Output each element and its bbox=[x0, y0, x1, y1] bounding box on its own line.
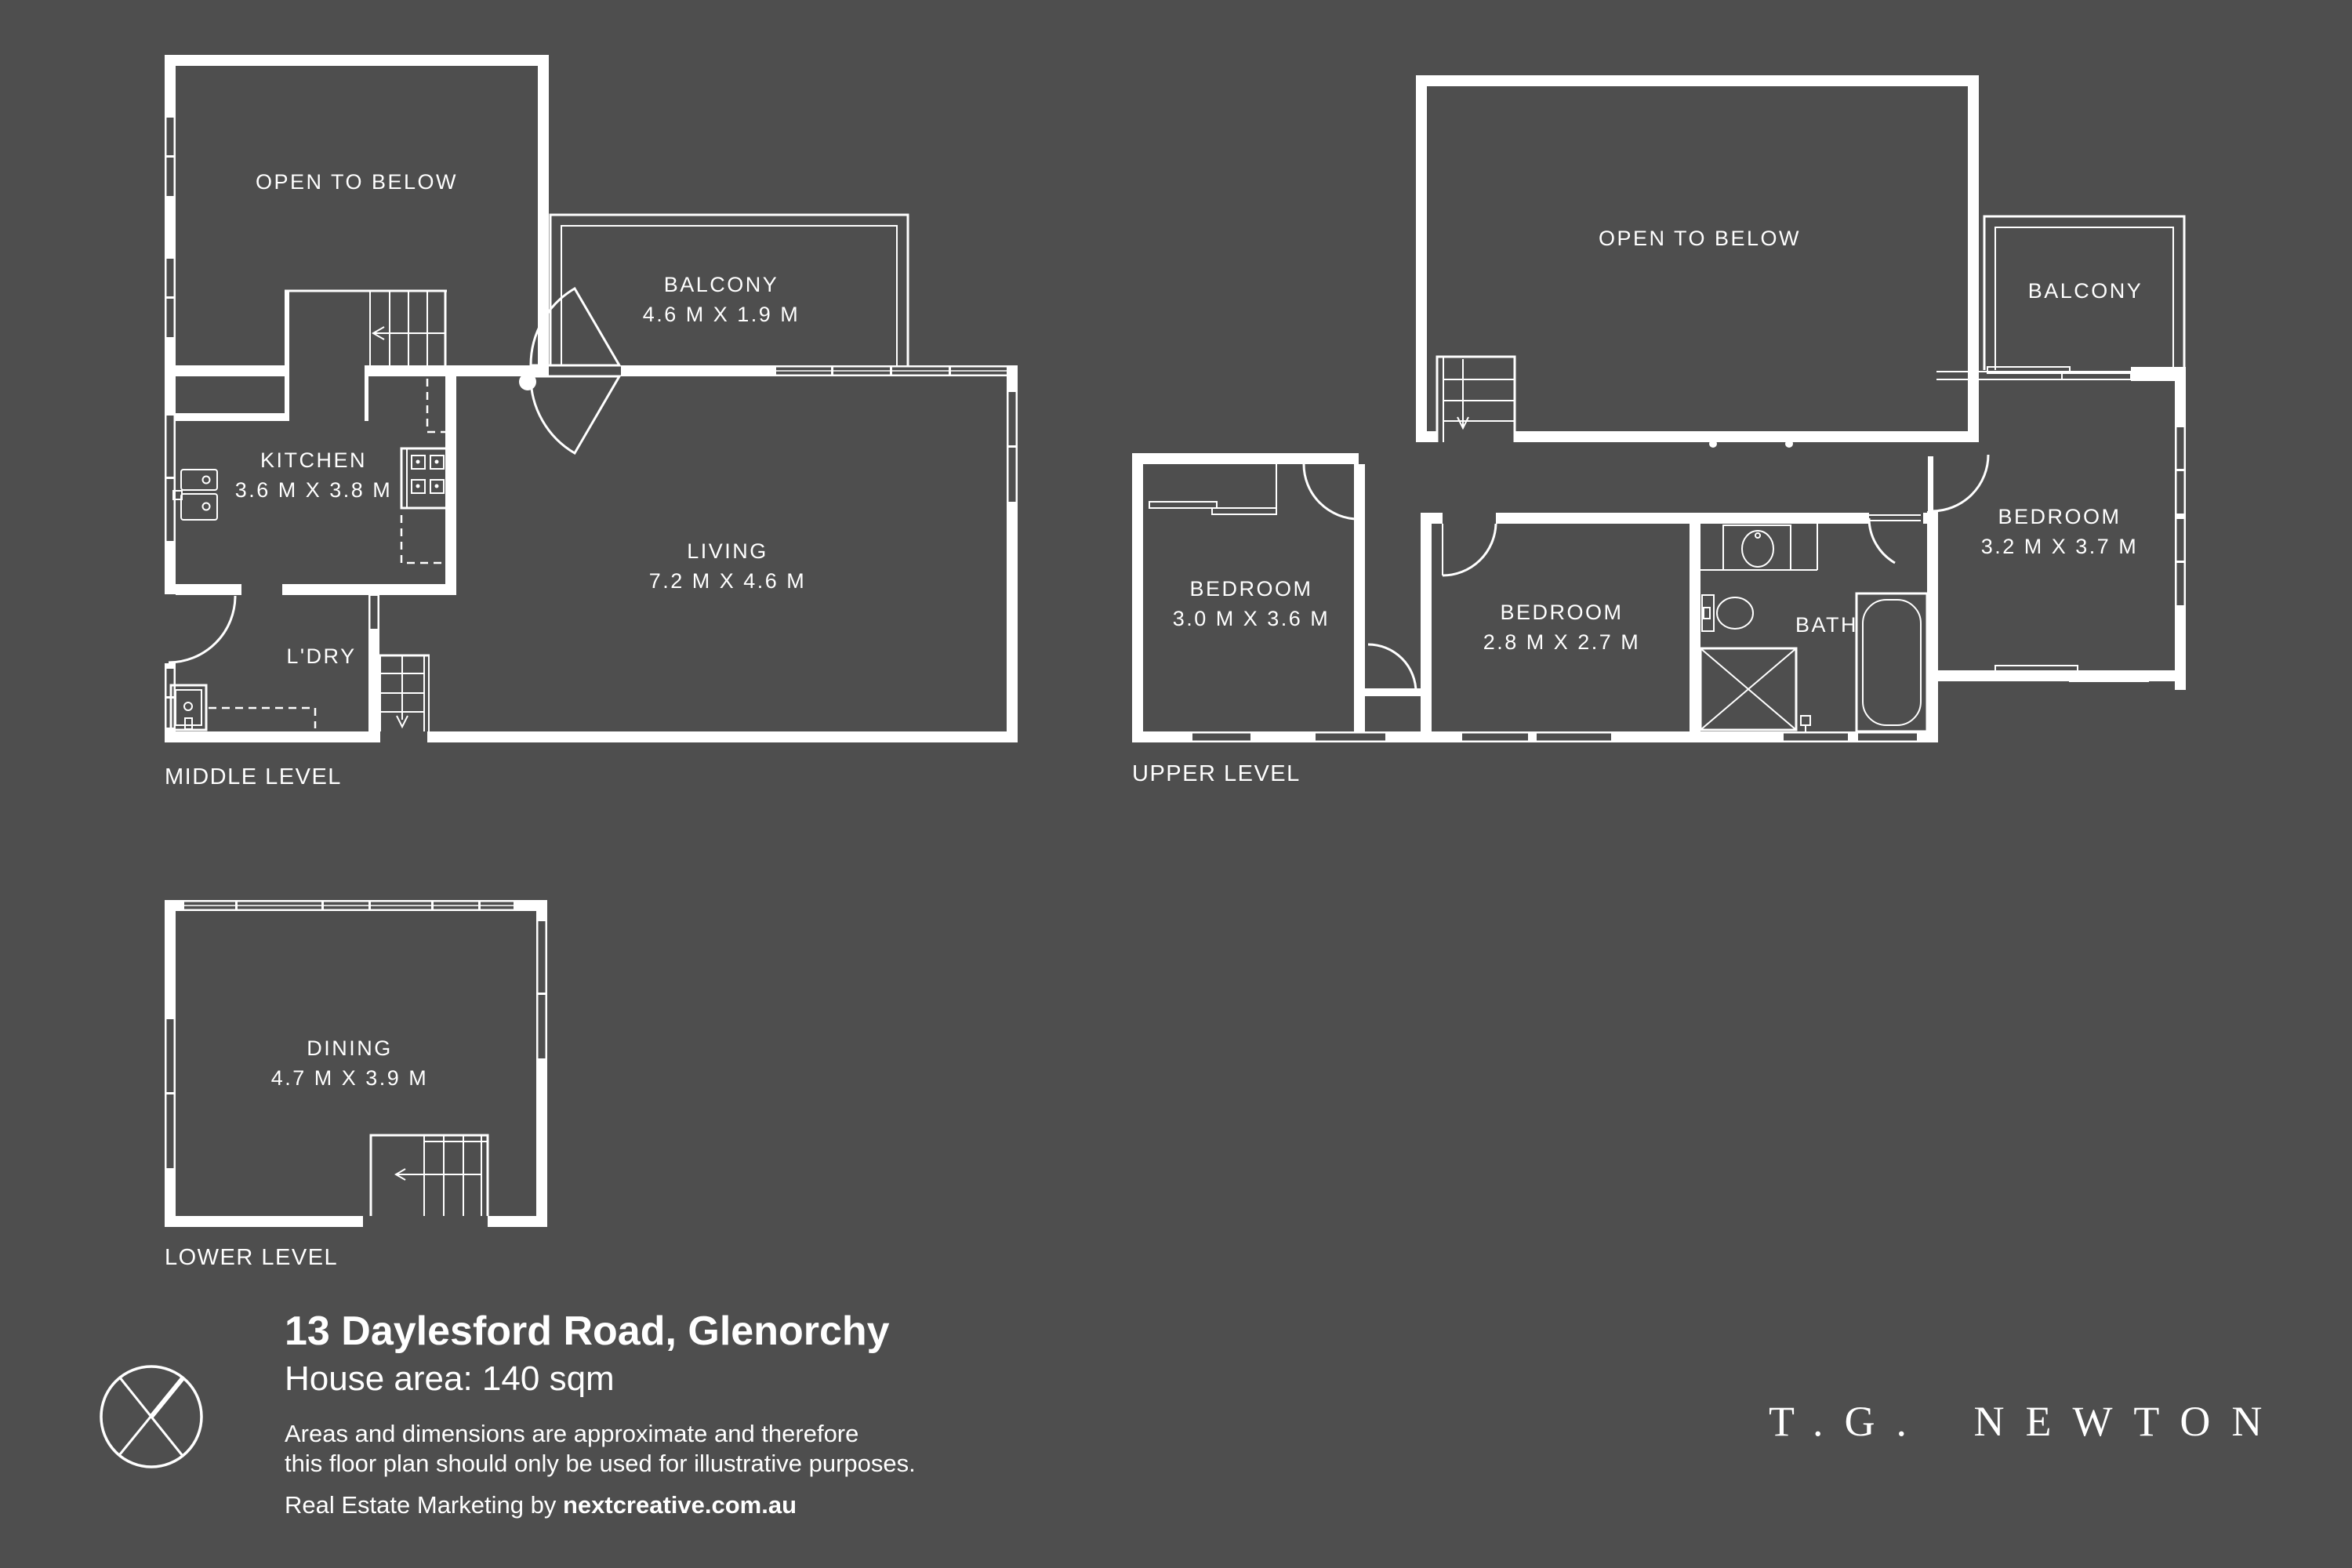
room-dims-living: 7.2 M X 4.6 M bbox=[649, 569, 807, 593]
disclaimer-line-1: Areas and dimensions are approximate and… bbox=[285, 1419, 916, 1449]
door-arc bbox=[1927, 455, 1988, 511]
toilet bbox=[1702, 595, 1753, 631]
stove bbox=[401, 448, 449, 508]
room-dims-kitchen: 3.6 M X 3.8 M bbox=[235, 478, 393, 502]
nextcreative-logo-icon bbox=[101, 1367, 201, 1467]
stairs-down bbox=[378, 655, 430, 742]
room-label-bedroom2: BEDROOM bbox=[1500, 601, 1623, 624]
door-arc bbox=[1304, 464, 1362, 519]
level-label-lower: LOWER LEVEL bbox=[165, 1245, 338, 1270]
room-dims-dining: 4.7 M X 3.9 M bbox=[271, 1066, 429, 1090]
room-dims-bedroom3: 3.2 M X 3.7 M bbox=[1981, 535, 2139, 558]
door-arc bbox=[1365, 644, 1421, 696]
room-label-dining: DINING bbox=[307, 1036, 393, 1060]
room-label-open-below-mid: OPEN TO BELOW bbox=[256, 170, 458, 194]
room-label-bath: BATH bbox=[1795, 613, 1858, 637]
disclaimer-text: Areas and dimensions are approximate and… bbox=[285, 1419, 916, 1479]
disclaimer-line-2: this floor plan should only be used for … bbox=[285, 1449, 916, 1479]
room-label-laundry: L'DRY bbox=[286, 644, 356, 668]
cased-opening bbox=[368, 596, 379, 629]
room-label-balcony-upper: BALCONY bbox=[2028, 279, 2143, 303]
level-label-middle: MIDDLE LEVEL bbox=[165, 764, 342, 789]
agency-brand-logo: T.G. NEWTON bbox=[1769, 1397, 2283, 1446]
bathtub bbox=[1857, 593, 1927, 731]
middle-level-plan: OPEN TO BELOW BALCONY 4.6 M X 1.9 M KITC… bbox=[165, 55, 1018, 789]
doorway bbox=[239, 584, 285, 595]
kitchen-sink bbox=[173, 470, 217, 520]
marketing-domain: nextcreative.com.au bbox=[563, 1491, 797, 1519]
room-dims-bedroom1: 3.0 M X 3.6 M bbox=[1173, 607, 1330, 630]
overhead-cupboard bbox=[427, 379, 445, 432]
door-arc bbox=[165, 594, 235, 663]
stairs-up bbox=[285, 291, 447, 376]
door-pivot-dot bbox=[1709, 440, 1717, 448]
page-title-address: 13 Daylesford Road, Glenorchy bbox=[285, 1308, 890, 1355]
bench-dashed bbox=[401, 515, 449, 563]
room-label-living: LIVING bbox=[687, 539, 768, 563]
window bbox=[165, 900, 547, 1168]
room-dims-balcony-mid: 4.6 M X 1.9 M bbox=[643, 303, 800, 326]
door-arc bbox=[1869, 513, 1923, 563]
room-dims-bedroom2: 2.8 M X 2.7 M bbox=[1483, 630, 1641, 654]
house-area-text: House area: 140 sqm bbox=[285, 1359, 615, 1399]
stairs-upper bbox=[1437, 357, 1515, 442]
lower-level-plan: DINING 4.7 M X 3.9 M LOWER LEVEL bbox=[165, 900, 547, 1270]
stairs-lower bbox=[361, 1135, 490, 1227]
floorplan-sheet: OPEN TO BELOW BALCONY 4.6 M X 1.9 M KITC… bbox=[0, 0, 2352, 1568]
level-label-upper: UPPER LEVEL bbox=[1132, 761, 1301, 786]
upper-level-plan: OPEN TO BELOW BALCONY BEDROOM 3.0 M X 3.… bbox=[1132, 75, 2186, 786]
marketing-credit: Real Estate Marketing by nextcreative.co… bbox=[285, 1491, 797, 1519]
laundry-tub bbox=[171, 685, 206, 730]
marketing-prefix: Real Estate Marketing by bbox=[285, 1491, 563, 1519]
room-label-balcony-mid: BALCONY bbox=[664, 273, 779, 296]
room-label-open-below-upper: OPEN TO BELOW bbox=[1599, 227, 1801, 250]
robe-sliding-doors bbox=[1149, 464, 1276, 514]
room-label-kitchen: KITCHEN bbox=[260, 448, 367, 472]
room-label-bedroom3: BEDROOM bbox=[1998, 505, 2121, 528]
bathroom-vanity bbox=[1700, 524, 1817, 570]
door-arc bbox=[1443, 513, 1496, 575]
laundry-bench-dashed bbox=[209, 708, 315, 728]
room-label-bedroom1: BEDROOM bbox=[1189, 577, 1312, 601]
door-pivot-dot bbox=[1785, 440, 1793, 448]
shower bbox=[1700, 648, 1810, 731]
